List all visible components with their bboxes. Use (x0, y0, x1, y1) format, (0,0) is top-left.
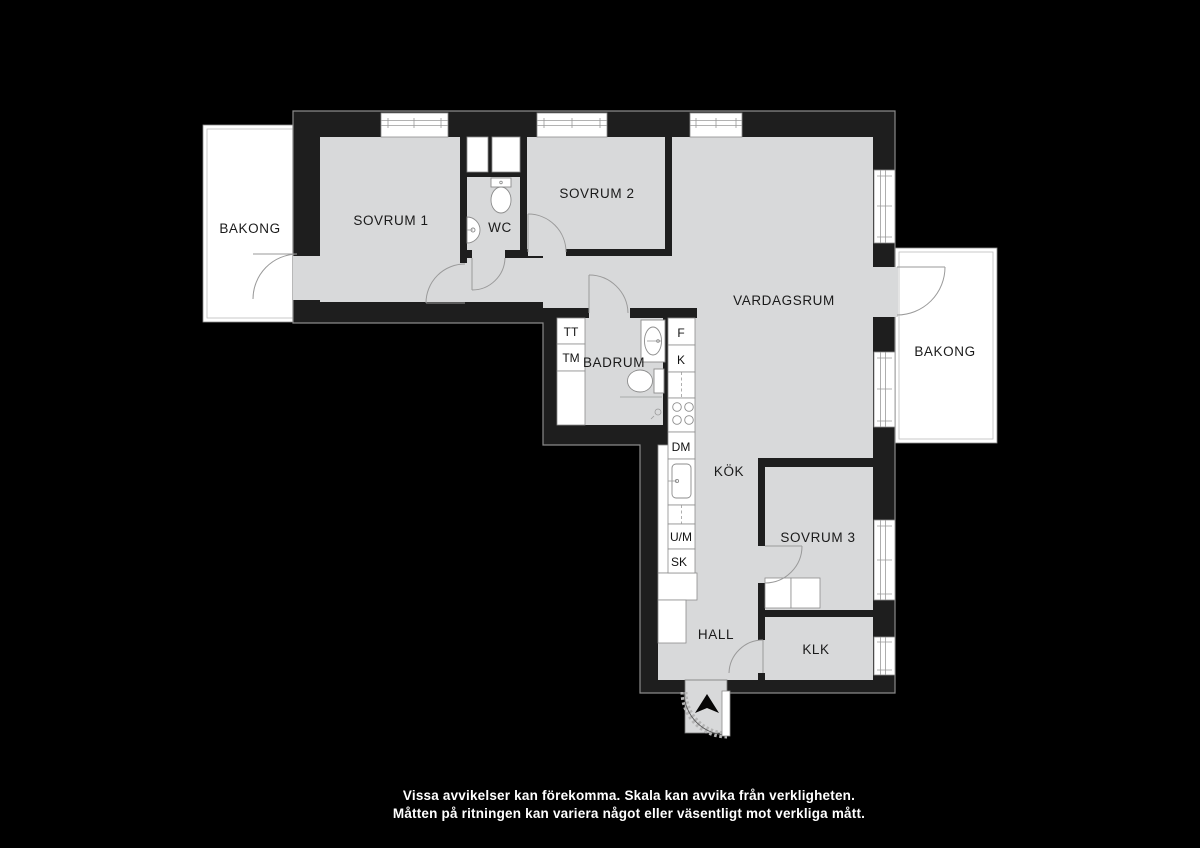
label-dishwasher: DM (672, 440, 691, 454)
hall-wardrobe (658, 600, 686, 643)
label-balcony-right: BAKONG (914, 344, 975, 359)
label-sk: SK (671, 555, 687, 569)
window-icon (874, 170, 895, 243)
label-wc: WC (488, 220, 512, 235)
window-icon (690, 113, 742, 137)
label-balcony-left: BAKONG (219, 221, 280, 236)
disclaimer-line2: Måtten på ritningen kan variera något el… (393, 806, 865, 821)
floorplan-drawing: BAKONG SOVRUM 1 WC SOVRUM 2 VARDAGSRUM B… (0, 0, 1200, 848)
sovrum3-wardrobe (791, 578, 820, 608)
hall-wardrobe (658, 573, 697, 600)
shaft-box (492, 137, 520, 172)
window-icon (537, 113, 607, 137)
label-klk: KLK (802, 642, 829, 657)
disclaimer-line1: Vissa avvikelser kan förekomma. Skala ka… (403, 788, 855, 803)
label-badrum: BADRUM (583, 355, 645, 370)
label-sovrum3: SOVRUM 3 (780, 530, 855, 545)
label-hall: HALL (698, 627, 734, 642)
entry-door-leaf (722, 691, 730, 736)
shaft-box (467, 137, 488, 172)
window-icon (874, 637, 895, 675)
label-kok: KÖK (714, 464, 744, 479)
label-vardagsrum: VARDAGSRUM (733, 293, 835, 308)
floorplan-page: BAKONG SOVRUM 1 WC SOVRUM 2 VARDAGSRUM B… (0, 0, 1200, 848)
label-tt: TT (564, 325, 579, 339)
label-freezer: K (677, 353, 685, 367)
label-fridge: F (677, 326, 684, 340)
bathroom-cabinet (557, 371, 585, 425)
toilet-icon (491, 178, 511, 213)
window-icon (874, 352, 895, 427)
label-tm: TM (562, 351, 579, 365)
label-um: U/M (670, 530, 692, 544)
window-icon (381, 113, 448, 137)
label-sovrum1: SOVRUM 1 (353, 213, 428, 228)
label-sovrum2: SOVRUM 2 (559, 186, 634, 201)
window-icon (874, 520, 895, 600)
